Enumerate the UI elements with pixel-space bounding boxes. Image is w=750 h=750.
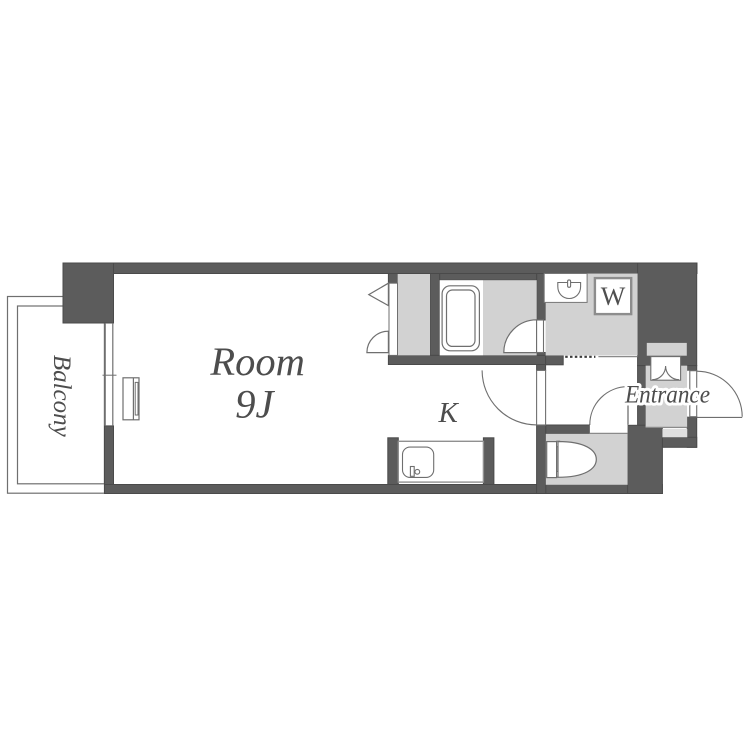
svg-text:W: W [601,282,626,311]
svg-text:9J: 9J [235,381,275,426]
svg-text:Balcony: Balcony [48,355,75,438]
svg-text:Room: Room [209,339,305,384]
svg-text:K: K [438,397,460,429]
svg-text:Entrance: Entrance [624,382,710,409]
